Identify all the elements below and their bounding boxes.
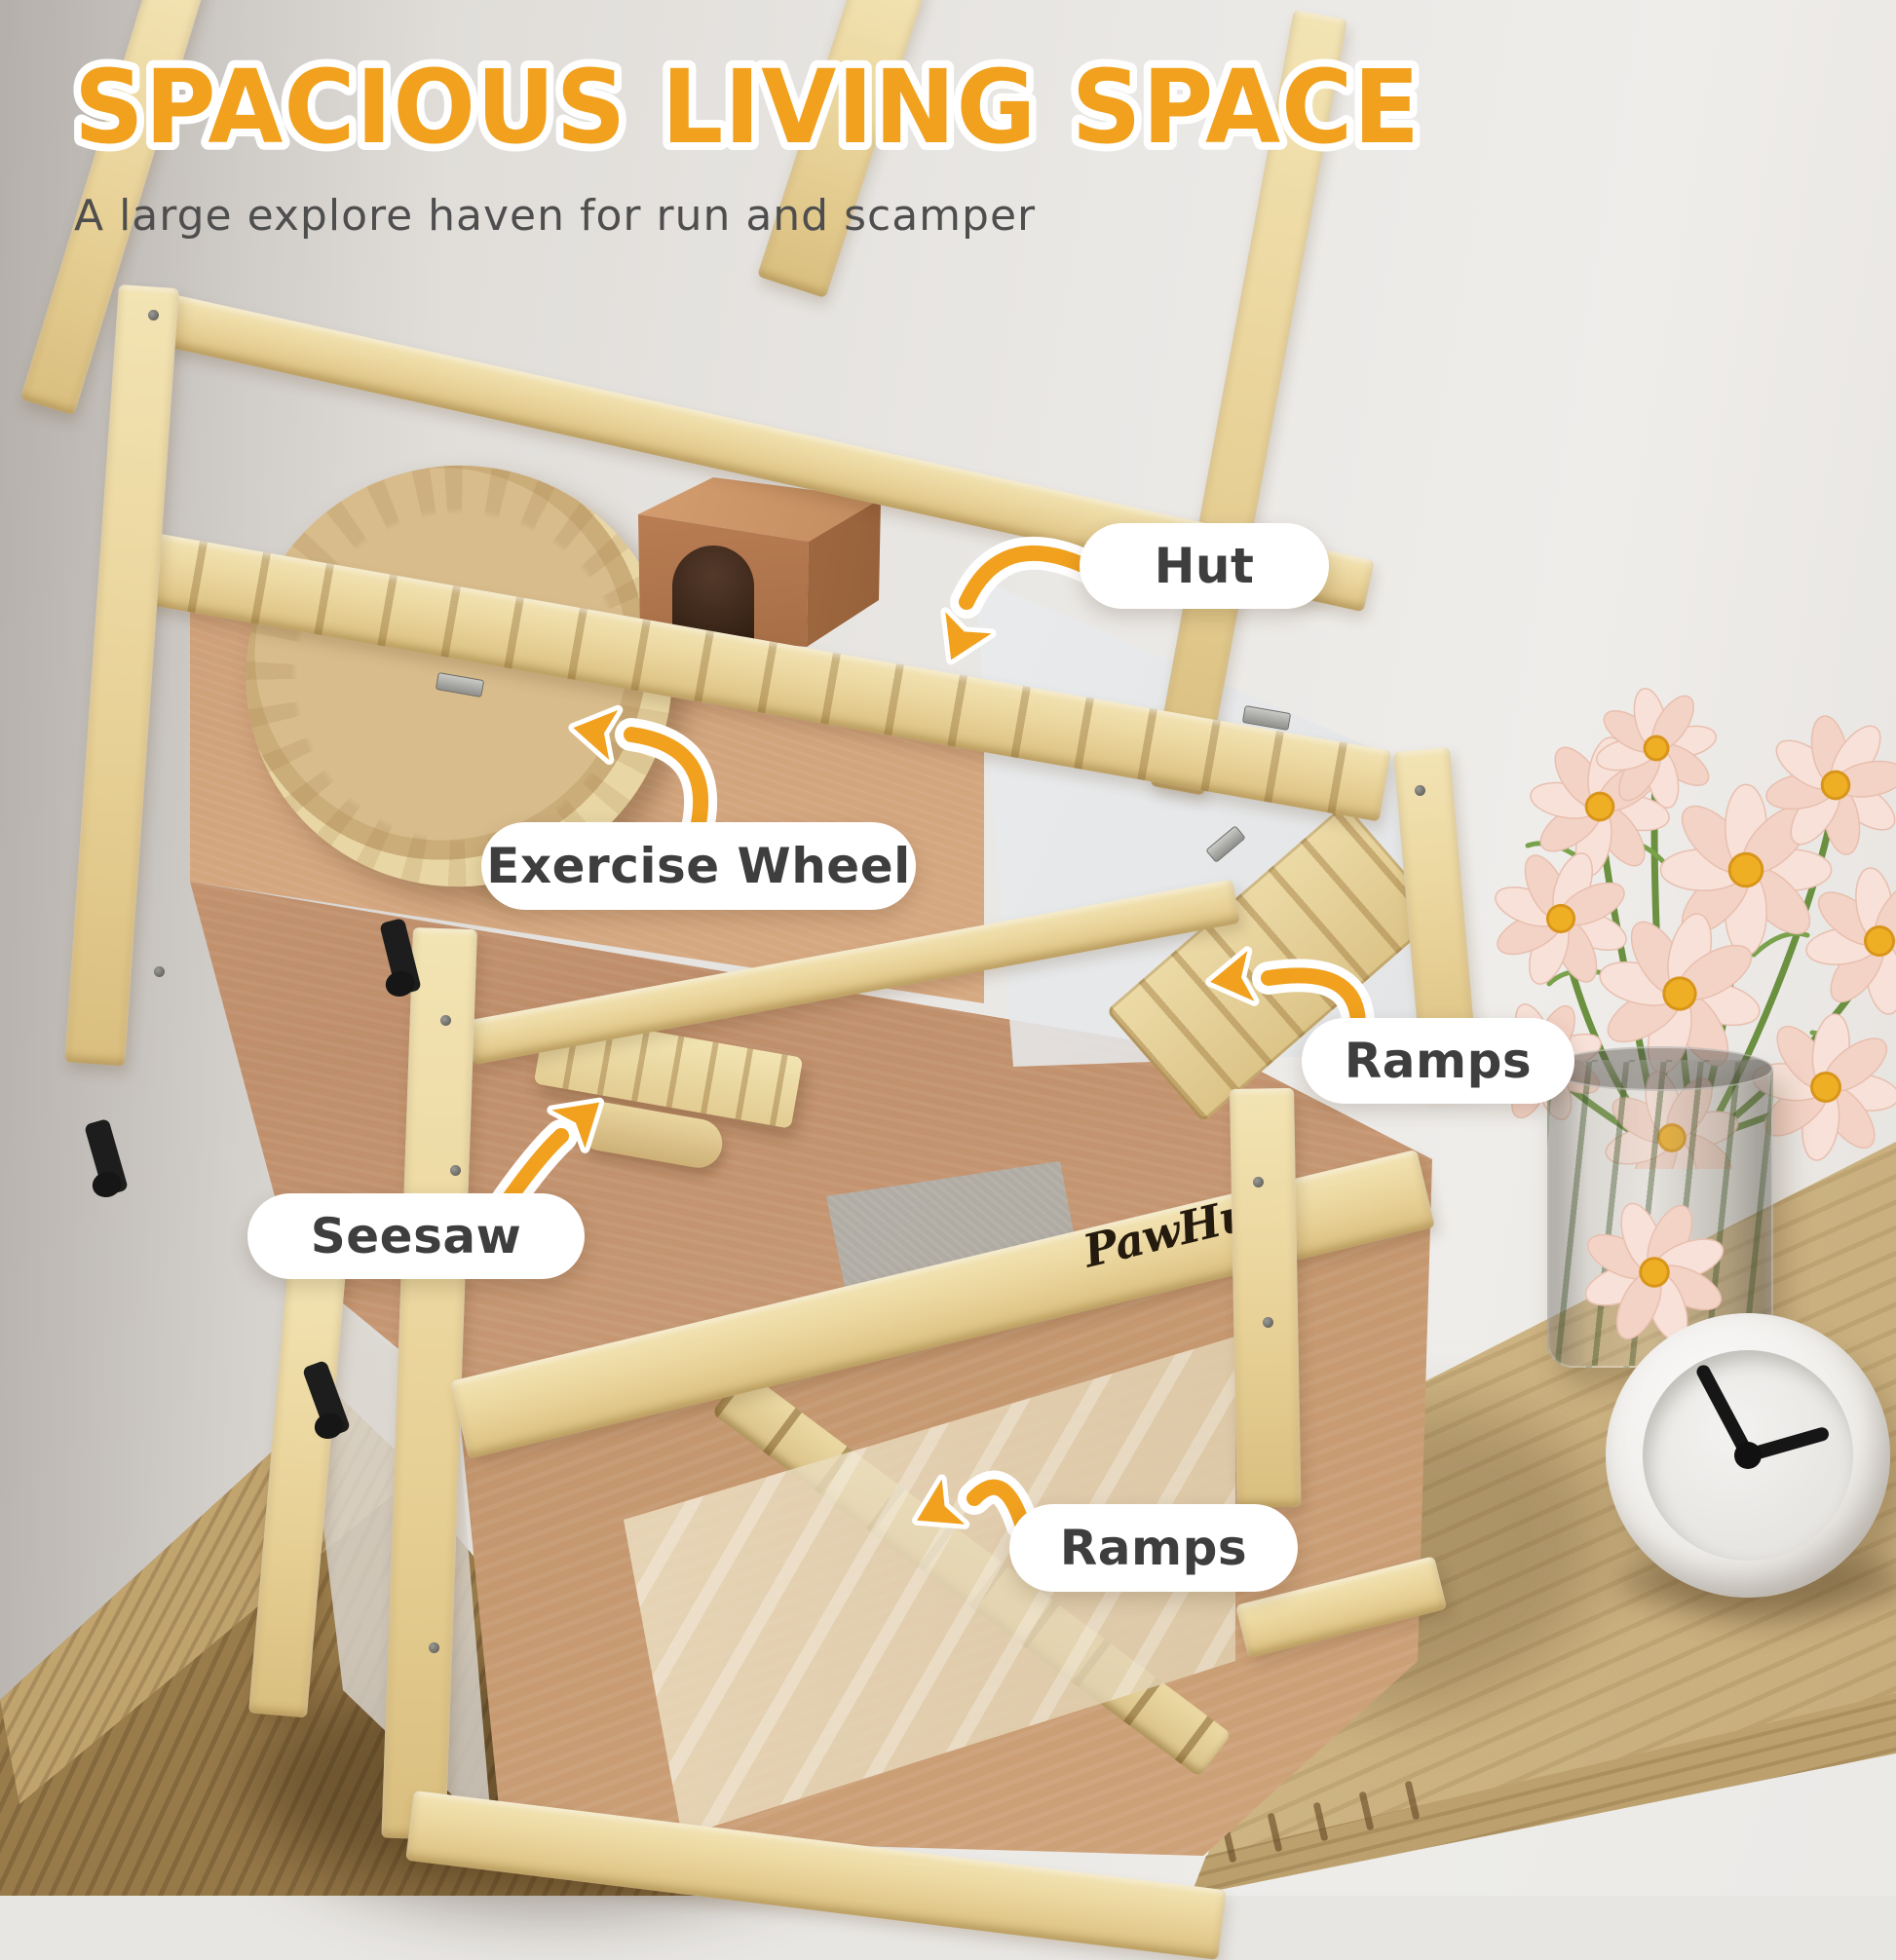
ramps-upper-arrow-icon — [1207, 951, 1358, 1023]
callout-ramps-lower: Ramps — [1009, 1504, 1298, 1592]
seesaw-arrow-icon — [507, 1083, 616, 1202]
callout-exercise-wheel: Exercise Wheel — [481, 822, 916, 910]
callout-seesaw-label: Seesaw — [311, 1208, 522, 1264]
callout-ramps-lower-label: Ramps — [1060, 1520, 1247, 1576]
ramps-lower-arrow-icon — [905, 1479, 1022, 1542]
callout-hut: Hut — [1080, 523, 1329, 609]
headline: SPACIOUS LIVING SPACE — [58, 23, 1539, 189]
callout-ramps-upper: Ramps — [1302, 1018, 1574, 1104]
callout-arrows — [0, 0, 1896, 1896]
page-subtitle: A large explore haven for run and scampe… — [74, 191, 1036, 241]
page-title: SPACIOUS LIVING SPACE — [74, 48, 1421, 167]
product-marketing-image: { "header": { "title": "SPACIOUS LIVING … — [0, 0, 1896, 1896]
hut-arrow-icon — [929, 553, 1099, 671]
exercise-wheel-arrow-icon — [569, 703, 701, 828]
callout-ramps-upper-label: Ramps — [1345, 1033, 1532, 1089]
callout-hut-label: Hut — [1155, 538, 1255, 594]
callout-exercise-wheel-label: Exercise Wheel — [486, 838, 911, 894]
callout-seesaw: Seesaw — [247, 1193, 585, 1279]
